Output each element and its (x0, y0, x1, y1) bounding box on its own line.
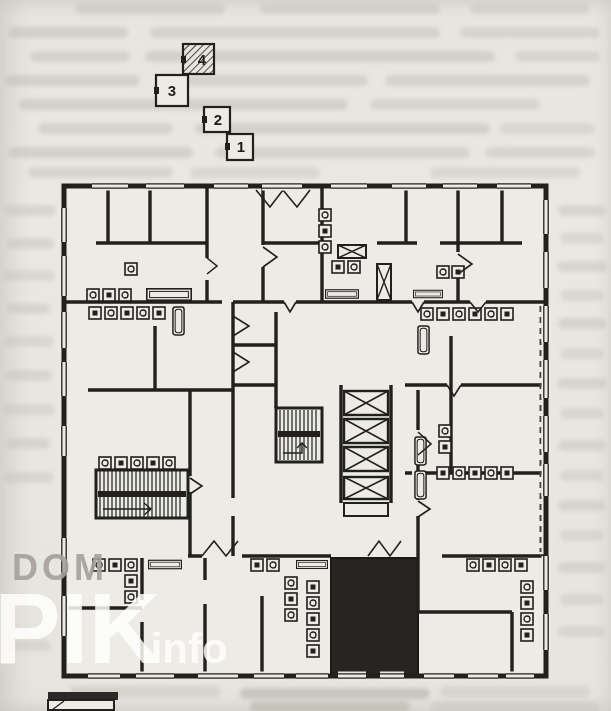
unit-legend: 4 3 2 1 (154, 44, 253, 160)
unit-number: 4 (198, 51, 207, 68)
scale-bar (48, 692, 118, 710)
bathtub-icon (173, 307, 184, 335)
unit-legend-box-3: 3 (154, 75, 188, 106)
bathtub-icon (415, 471, 426, 499)
floor-plan: 4 3 2 1 (0, 0, 611, 711)
unit-legend-box-4: 4 (181, 44, 214, 74)
bathtub-icon (418, 326, 429, 354)
dark-filled-room (331, 558, 418, 676)
unit-legend-box-1: 1 (225, 134, 253, 160)
scanned-page: 4 3 2 1 DOM (0, 0, 611, 711)
unit-number: 3 (168, 82, 176, 99)
unit-legend-box-2: 2 (202, 107, 230, 132)
bathtub-icon (415, 437, 426, 465)
unit-number: 1 (237, 138, 245, 155)
unit-number: 2 (214, 111, 222, 128)
